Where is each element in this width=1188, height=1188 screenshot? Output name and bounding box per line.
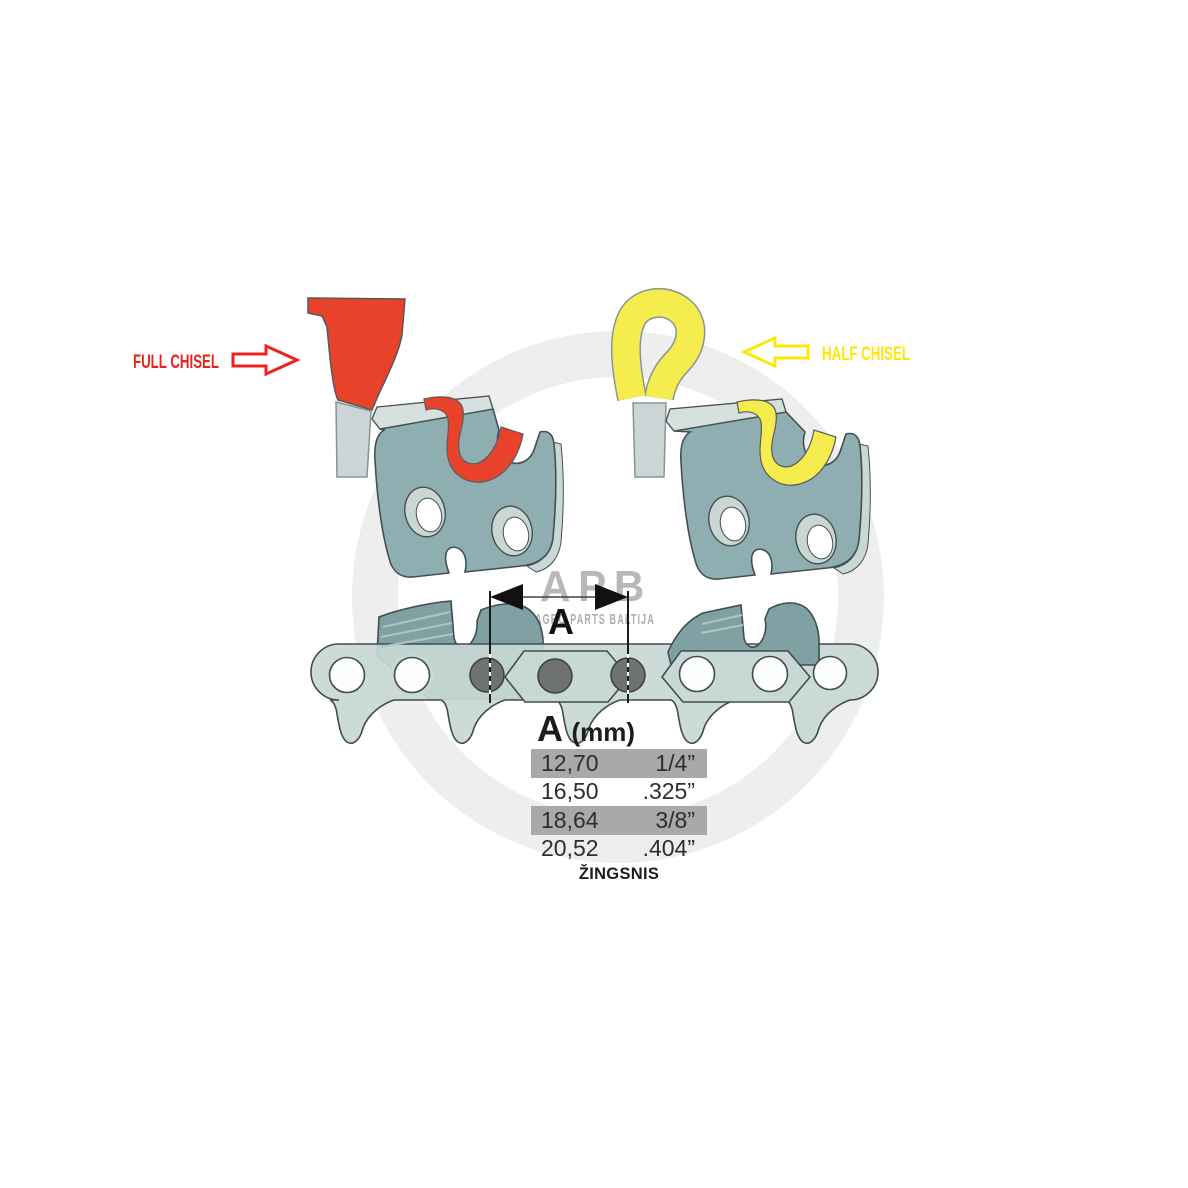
full-chisel-label-group: FULL CHISEL xyxy=(133,346,297,374)
pitch-header-letter: A xyxy=(537,708,563,749)
pitch-table-row: 20,52 .404” xyxy=(531,835,707,864)
pitch-table-header: A (mm) xyxy=(537,708,737,748)
chain-hole-4 xyxy=(753,657,788,692)
diagram-artwork: APB AGRO PARTS BALTIJA xyxy=(0,0,1188,1188)
full-chisel-label: FULL CHISEL xyxy=(133,352,219,373)
left-link-body xyxy=(375,409,556,577)
chain-rivet-2 xyxy=(538,659,572,693)
half-chisel-label: HALF CHISEL xyxy=(822,344,910,365)
pitch-header-unit: (mm) xyxy=(571,717,635,747)
full-chisel-arrow-icon xyxy=(233,346,297,374)
chain-hole-5 xyxy=(814,657,847,690)
chainsaw-chain-pitch-diagram: APB AGRO PARTS BALTIJA xyxy=(0,0,1188,1188)
pitch-inch-value: .325” xyxy=(643,778,697,805)
pitch-mm-value: 12,70 xyxy=(541,750,599,777)
half-chisel-stem xyxy=(633,403,666,477)
pitch-inch-value: 1/4” xyxy=(655,750,697,777)
full-chisel-stem xyxy=(336,402,371,477)
left-cutter-link xyxy=(372,396,563,577)
pitch-inch-value: 3/8” xyxy=(655,807,697,834)
pitch-table-row: 12,70 1/4” xyxy=(531,749,707,778)
pitch-table-row: 18,64 3/8” xyxy=(531,806,707,835)
full-chisel-tooth-shape xyxy=(308,298,405,410)
dimension-letter: A xyxy=(548,601,574,642)
pitch-caption: ŽINGSNIS xyxy=(531,865,707,884)
chain-hole-2 xyxy=(395,658,430,693)
pitch-table: 12,70 1/4” 16,50 .325” 18,64 3/8” 20,52 … xyxy=(531,749,707,863)
right-cutter-link xyxy=(666,399,870,579)
half-chisel-label-group: HALF CHISEL xyxy=(744,338,910,366)
chain-rivet-1 xyxy=(470,658,504,692)
pitch-inch-value: .404” xyxy=(643,835,697,862)
half-chisel-arrow-icon xyxy=(744,338,808,366)
pitch-table-row: 16,50 .325” xyxy=(531,778,707,807)
chain-hole-3 xyxy=(680,657,715,692)
chain-hole-1 xyxy=(330,658,365,693)
pitch-mm-value: 18,64 xyxy=(541,807,599,834)
pitch-mm-value: 20,52 xyxy=(541,835,599,862)
pitch-mm-value: 16,50 xyxy=(541,778,599,805)
